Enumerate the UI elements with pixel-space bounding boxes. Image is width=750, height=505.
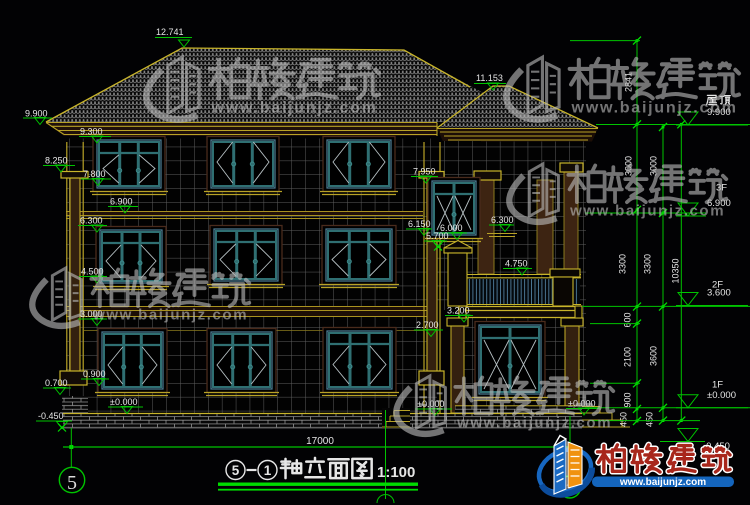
svg-text:17000: 17000 (306, 436, 334, 447)
svg-text:1:100: 1:100 (377, 464, 415, 481)
svg-text:www.baijunjz.com: www.baijunjz.com (569, 202, 725, 219)
svg-text:3300: 3300 (618, 254, 628, 274)
svg-text:www.baijunjz.com: www.baijunjz.com (619, 477, 706, 488)
svg-text:6.300: 6.300 (80, 216, 103, 226)
svg-text:3600: 3600 (649, 346, 659, 366)
svg-text:5.700: 5.700 (426, 231, 449, 241)
svg-text:±0.000: ±0.000 (707, 390, 736, 401)
svg-text:3000: 3000 (649, 156, 659, 176)
svg-text:www.baijunjz.com: www.baijunjz.com (456, 414, 612, 431)
svg-text:8.250: 8.250 (45, 156, 68, 166)
svg-text:2100: 2100 (623, 347, 633, 367)
svg-text:www.baijunjz.com: www.baijunjz.com (92, 306, 248, 323)
svg-text:6.900: 6.900 (110, 197, 133, 207)
svg-text:1: 1 (264, 463, 272, 478)
svg-text:3.200: 3.200 (447, 306, 470, 316)
svg-text:±0.000: ±0.000 (110, 397, 137, 407)
svg-text:600: 600 (623, 312, 633, 327)
svg-text:2.700: 2.700 (416, 320, 439, 330)
svg-text:www.baijunjz.com: www.baijunjz.com (571, 98, 738, 116)
svg-text:450: 450 (619, 412, 629, 427)
svg-text:10350: 10350 (671, 258, 681, 283)
svg-text:450: 450 (645, 412, 655, 427)
svg-text:7.950: 7.950 (413, 167, 436, 177)
svg-text:11.153: 11.153 (476, 73, 503, 83)
svg-text:3300: 3300 (643, 254, 653, 274)
svg-text:0.900: 0.900 (83, 369, 106, 379)
svg-text:6.150: 6.150 (408, 219, 431, 229)
svg-text:-0.450: -0.450 (38, 411, 64, 421)
svg-text:0.700: 0.700 (45, 378, 68, 388)
svg-text:www.baijunjz.com: www.baijunjz.com (211, 98, 378, 116)
svg-text:5: 5 (232, 463, 240, 478)
svg-text:4.750: 4.750 (505, 259, 528, 269)
svg-text:6.300: 6.300 (491, 215, 514, 225)
svg-text:12.741: 12.741 (156, 27, 184, 37)
svg-text:7.800: 7.800 (83, 169, 106, 179)
svg-text:5: 5 (67, 472, 77, 494)
svg-text:900: 900 (623, 392, 633, 407)
svg-text:9.300: 9.300 (80, 127, 103, 137)
svg-text:3.600: 3.600 (707, 288, 731, 299)
